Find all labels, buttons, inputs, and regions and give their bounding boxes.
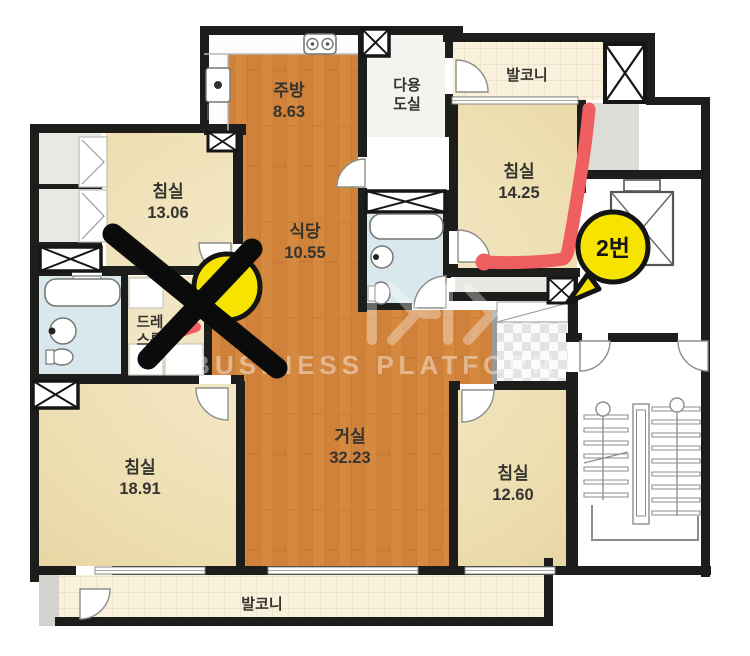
shaft-x-icon [40,247,101,271]
label-bed12-name: 침실 [497,463,528,483]
door-arc-neighbor [678,341,708,371]
label-utility-line1: 다용 [393,77,421,94]
shaft-x-icon [605,44,645,102]
stairs-icon [584,398,700,540]
stair-treads-right [652,407,700,515]
stair-newel-right [670,398,684,412]
label-dining-name: 식당 [289,222,321,241]
stair-stringer-inner [637,410,646,516]
label-bed18-area: 18.91 [119,480,160,498]
label-kitchen-name: 주방 [273,81,305,100]
stair-treads-left [584,415,628,497]
shaft-x-icon [366,191,445,212]
stove-icon [304,34,336,54]
stair-newel-left [596,402,610,416]
annotation-bubble-2: 2번 [568,212,648,302]
label-bed14-area: 14.25 [498,184,539,202]
door-arc-front-door [580,341,610,371]
floor-plan-page: 주방 8.63 침실 13.06 식당 10.55 다용 도실 발코니 침실 1… [0,0,750,656]
label-dining-area: 10.55 [284,244,325,262]
balcony-bottom-floor [59,575,544,617]
label-utility-line2: 도실 [393,96,421,113]
label-bed18-name: 침실 [124,457,155,477]
label-balcony-bottom: 발코니 [241,596,282,613]
label-bed13-name: 침실 [152,181,183,201]
label-kitchen-area: 8.63 [273,103,305,121]
wardrobe-icon [79,137,107,242]
bubble-label: 2번 [596,235,630,261]
label-bed13-area: 13.06 [147,204,188,222]
label-bed12-area: 12.60 [492,486,533,504]
label-bed14-name: 침실 [503,161,534,181]
label-living-name: 거실 [334,427,365,446]
label-living-area: 32.23 [329,449,370,467]
floors [38,30,639,626]
shaft-x-icon [33,381,78,408]
shaft-x-icon [362,29,389,56]
floor-plan-canvas: 주방 8.63 침실 13.06 식당 10.55 다용 도실 발코니 침실 1… [0,0,750,656]
label-dress-line1: 드레 [137,314,164,331]
shaft-x-icon [208,132,237,151]
label-balcony-top: 발코니 [506,67,547,84]
